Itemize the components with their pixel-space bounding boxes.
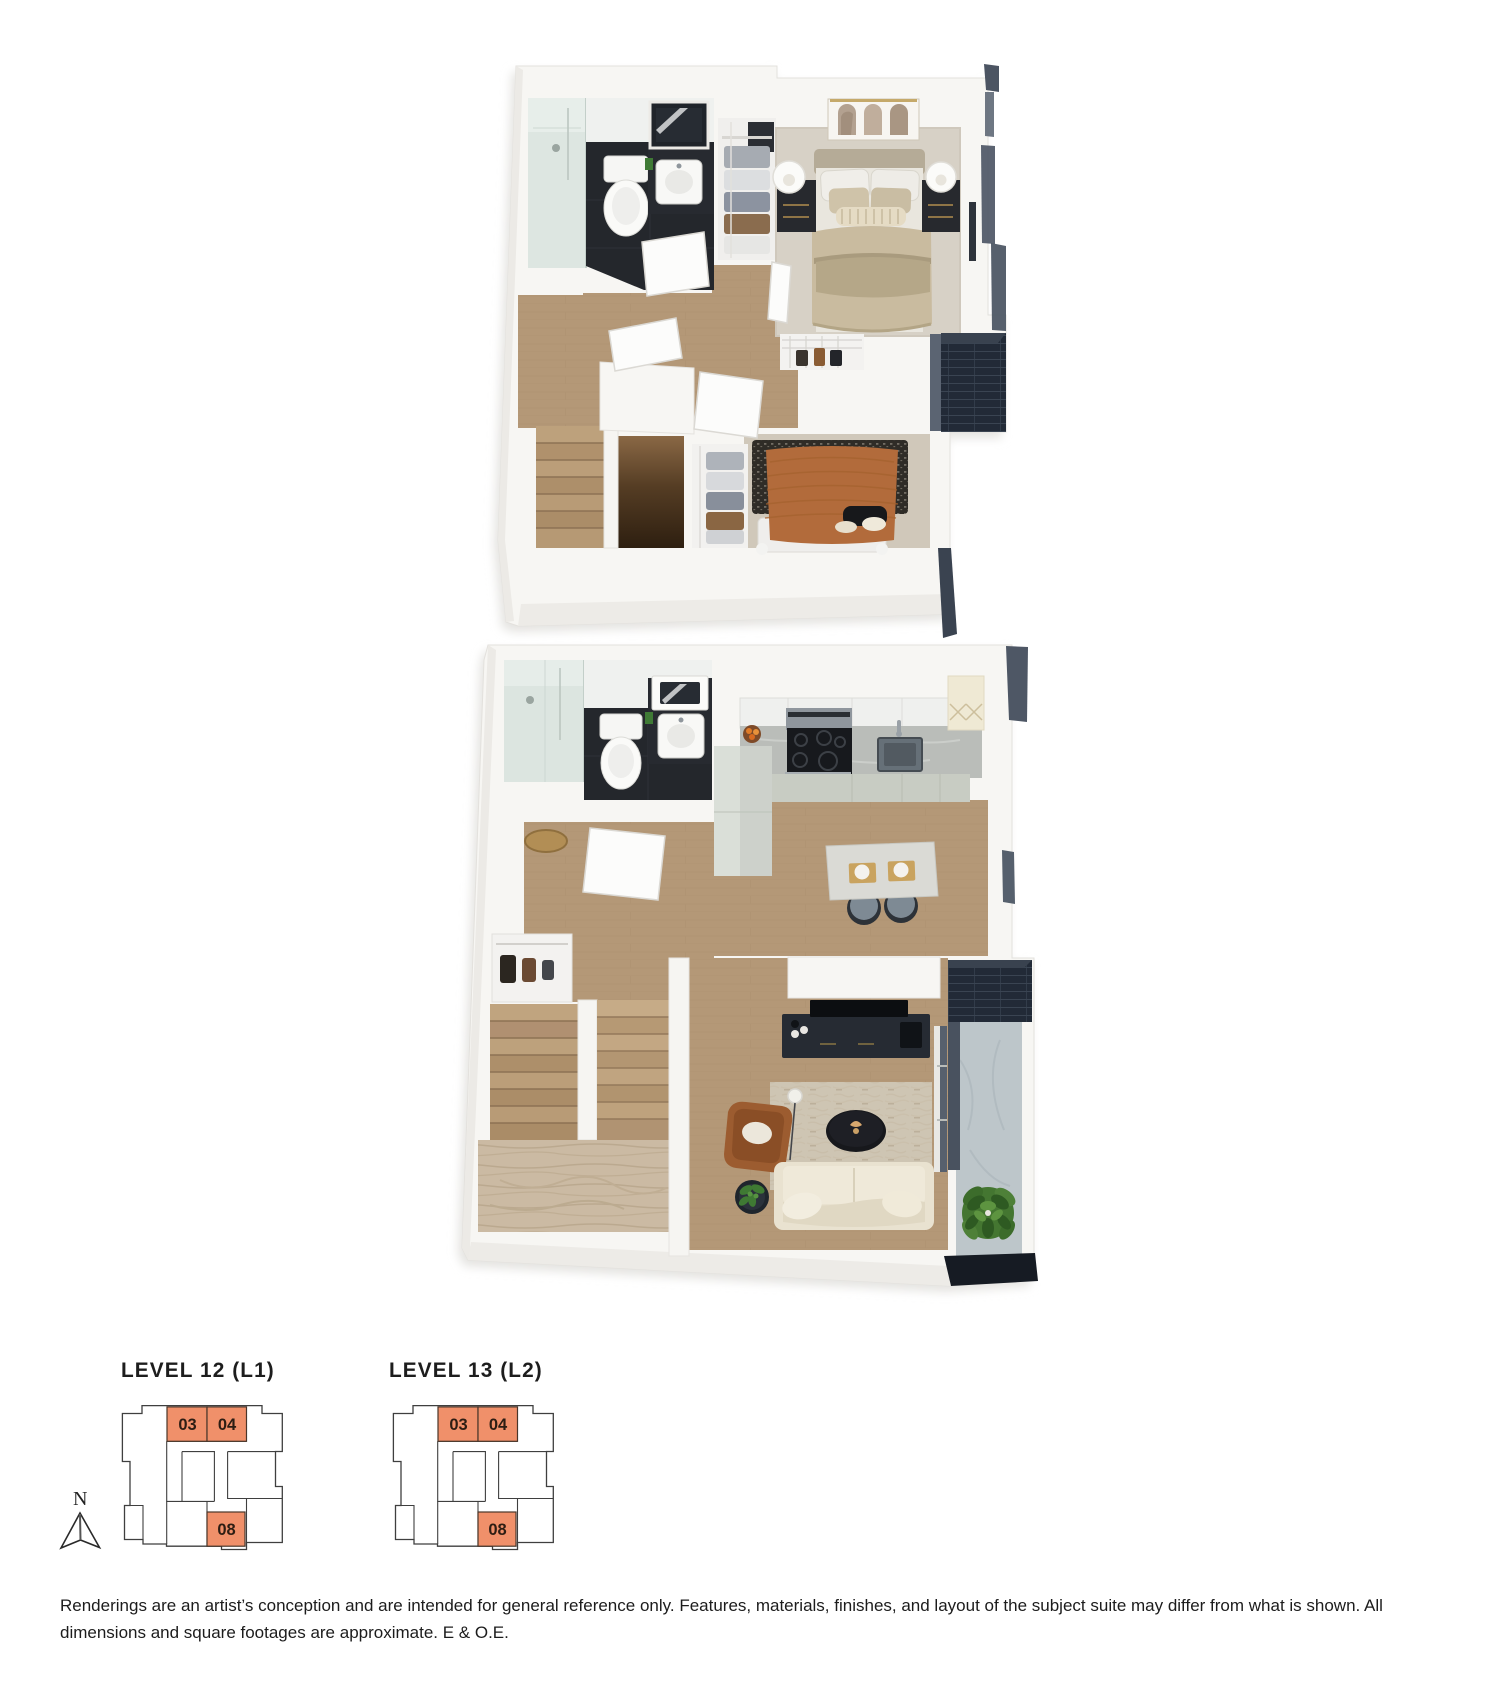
svg-text:04: 04 xyxy=(218,1416,237,1434)
svg-text:LEVEL 13 (L2): LEVEL 13 (L2) xyxy=(389,1359,543,1382)
svg-text:08: 08 xyxy=(488,1521,506,1539)
svg-text:03: 03 xyxy=(178,1416,196,1434)
svg-text:dimensions and square footages: dimensions and square footages are appro… xyxy=(60,1623,509,1642)
svg-text:04: 04 xyxy=(489,1416,508,1434)
svg-text:N: N xyxy=(73,1488,87,1510)
svg-text:LEVEL 12 (L1): LEVEL 12 (L1) xyxy=(121,1359,275,1382)
svg-text:08: 08 xyxy=(217,1521,235,1539)
svg-text:03: 03 xyxy=(449,1416,467,1434)
svg-text:Renderings are an artist’s con: Renderings are an artist’s conception an… xyxy=(60,1596,1383,1615)
